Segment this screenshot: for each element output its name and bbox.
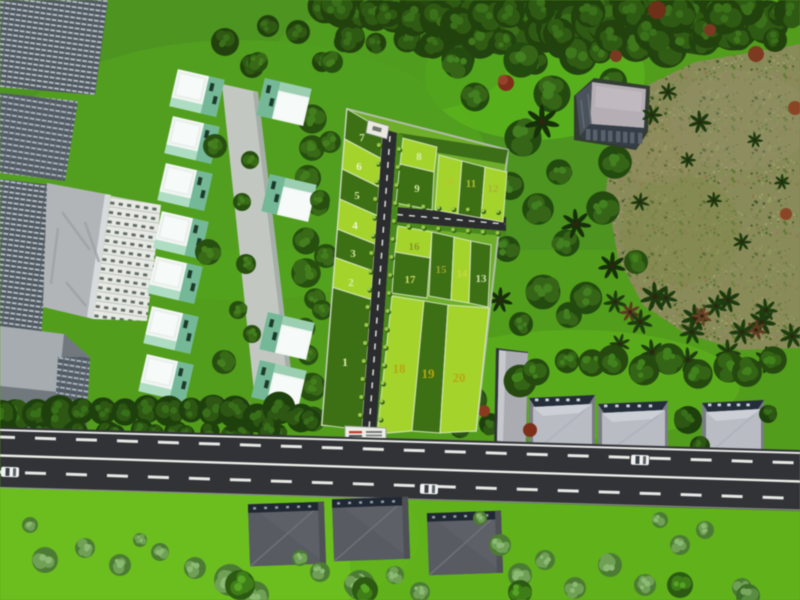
svg-text:10: 10	[443, 176, 455, 188]
svg-text:3: 3	[350, 248, 356, 260]
svg-text:17: 17	[405, 274, 417, 286]
svg-text:6: 6	[356, 161, 362, 173]
svg-text:4: 4	[352, 220, 358, 232]
svg-text:7: 7	[359, 132, 365, 144]
svg-text:1: 1	[342, 355, 348, 369]
svg-text:2: 2	[348, 277, 354, 289]
svg-text:20: 20	[453, 370, 466, 385]
svg-text:9: 9	[414, 183, 420, 195]
svg-text:8: 8	[416, 151, 422, 163]
svg-text:19: 19	[422, 366, 436, 381]
svg-text:15: 15	[436, 264, 448, 276]
svg-text:11: 11	[466, 178, 476, 190]
svg-text:5: 5	[354, 190, 360, 202]
svg-text:18: 18	[393, 361, 407, 376]
svg-text:12: 12	[488, 183, 500, 195]
svg-text:13: 13	[476, 273, 488, 285]
svg-text:16: 16	[409, 241, 421, 253]
svg-text:14: 14	[457, 268, 469, 280]
